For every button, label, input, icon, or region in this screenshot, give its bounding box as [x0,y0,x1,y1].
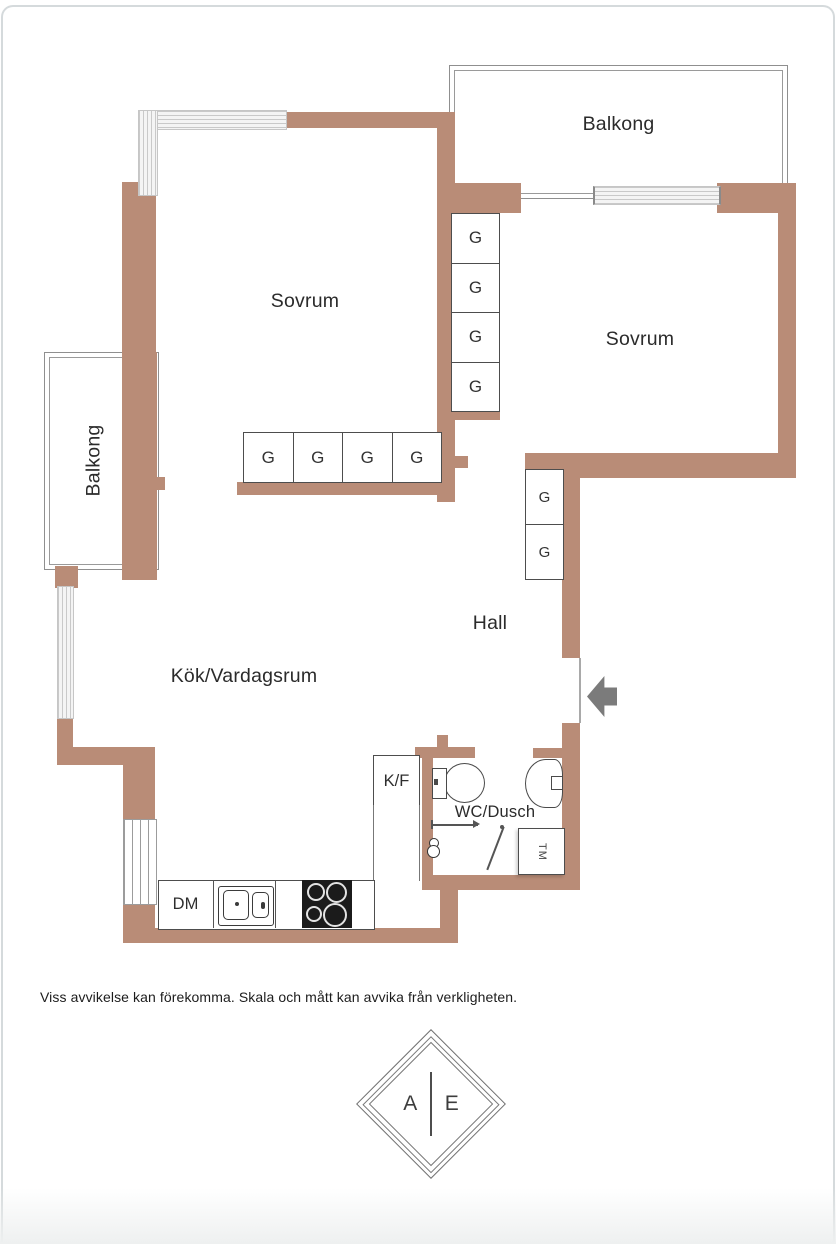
door-swing-dot [500,825,504,829]
wall-wc-north-stub [437,735,448,749]
bottom-fade [0,1188,836,1244]
balcony-left-label: Balkong [83,424,106,496]
disclaimer-text: Viss avvikelse kan förekomma. Skala och … [40,989,517,1005]
dimension-line [432,824,478,826]
bedroom-left-label: Sovrum [230,290,380,313]
wardrobe: G [342,433,392,482]
logo-letters: A E [355,1030,507,1178]
door-swing-line [486,827,504,870]
wall-balcony-stub [55,566,78,588]
corner-window-vertical [138,110,158,196]
wall-step [57,747,155,765]
wall-bedroom2-topright [717,183,796,213]
washing-machine: TM [518,828,565,875]
logo-letter-right: E [445,1092,459,1116]
dishwasher-label: DM [173,895,199,914]
stove-burner [323,903,347,927]
wardrobe: G [244,433,293,482]
counter-divider [275,880,276,928]
stove-burner [306,906,322,922]
balcony-top: Balkong [449,65,788,199]
stove-burner [307,883,325,901]
wall-east-upper [562,478,580,658]
floor-drain [427,845,440,858]
kitchen-living-label: Kök/Vardagsrum [122,665,366,688]
wardrobe: G [452,362,499,412]
left-window-tall [57,586,74,719]
logo-divider [430,1072,432,1136]
toilet-flush [434,779,438,785]
hall-label: Hall [440,612,540,635]
logo-letter-left: A [403,1092,417,1116]
washing-machine-label: TM [535,843,547,861]
bedroom-right-label: Sovrum [565,328,715,351]
stove [302,880,352,928]
bathroom-label: WC/Dusch [434,803,556,822]
dishwasher: DM [158,880,213,928]
sink-unit [218,886,274,926]
bedroom2-window [593,186,721,205]
wardrobe: G [526,470,563,524]
wall-bedroom1-top [285,112,437,128]
wardrobe-row: G G G G [243,432,442,483]
agency-logo: A E [355,1030,507,1178]
wall-left-lower [123,765,155,821]
balcony-top-label: Balkong [450,113,787,136]
fridge-column [373,805,420,881]
wardrobe: G [452,312,499,362]
wall-bedroom1-bottom [237,482,443,495]
toilet-bowl [444,763,485,803]
wardrobe: G [452,214,499,263]
wardrobe-pair: G G [525,469,564,580]
wardrobe: G [293,433,343,482]
wall-central-stub [455,456,468,468]
wall-wc-north-right [533,748,562,758]
entry-threshold-line [579,658,581,723]
floor-plan-page: Balkong Balkong G G G G G G G G [0,0,836,1244]
wall-left-notch [155,477,165,490]
wall-left-mid [122,352,157,580]
wall-bottom [123,928,458,943]
wall-wc-south [423,875,580,890]
wardrobe: G [526,524,563,579]
wall-bedroom2-bottom [525,453,796,478]
sink-tap [261,902,265,909]
corner-window-horizontal [138,110,287,130]
counter-divider [213,880,214,928]
fridge-freezer: K/F [373,755,420,807]
washbasin-tap [551,776,563,790]
wall-bedroom2-topleft [437,183,521,213]
entrance-arrow-icon [587,676,617,717]
wardrobe: G [392,433,442,482]
wall-bedroom2-right [778,183,796,478]
sink-drain [235,902,239,906]
fridge-freezer-label: K/F [384,772,410,791]
stove-burner [326,882,347,903]
wardrobe: G [452,263,499,313]
wardrobe-column: G G G G [451,213,500,412]
wall-left-upper [122,182,156,354]
left-window-low [123,819,157,905]
